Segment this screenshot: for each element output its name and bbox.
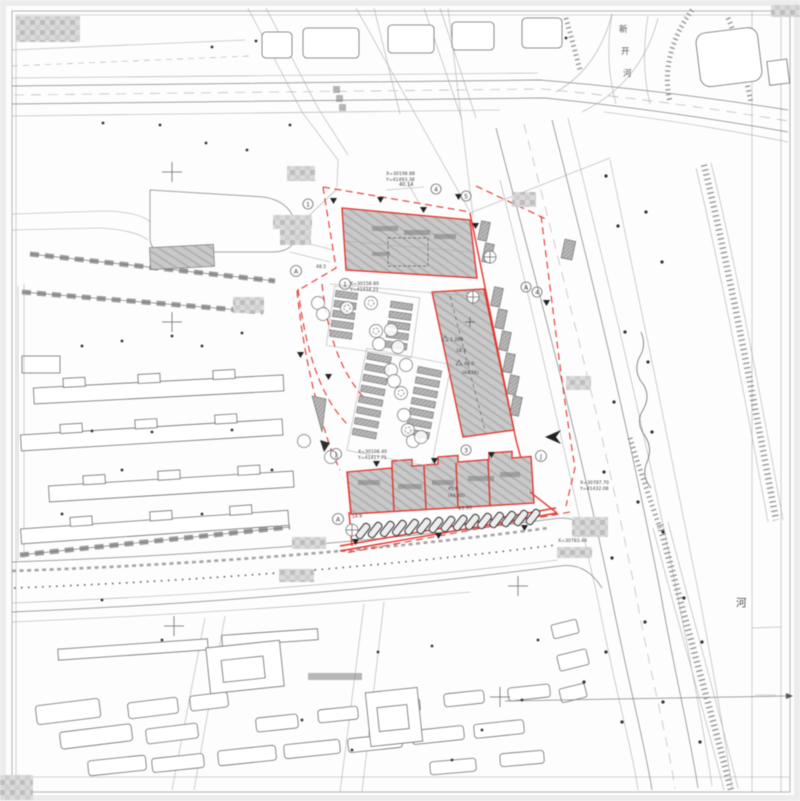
coordinate-note: X=30787.70	[580, 480, 609, 486]
elevation-note: 1.289	[450, 337, 463, 343]
building-a	[342, 208, 477, 278]
elevation-note: (44.80)	[448, 493, 465, 499]
river-name-char: 新	[619, 24, 628, 35]
illegible-label-smudge	[308, 673, 362, 680]
dimension-label: 14.9	[352, 513, 363, 520]
site-plan-drawing: A 1 4 5 A 4 1 J 3 J A X=30198.88 Y=41493…	[0, 0, 800, 801]
coordinate-note: X=30198.88	[386, 171, 415, 177]
bubble-label: 4	[535, 290, 539, 297]
coordinate-note: X=30108.40	[358, 449, 387, 455]
elevation-note: 46.0	[464, 361, 474, 367]
bubble-label: 1	[306, 202, 310, 209]
dimension-label: 43.90	[458, 505, 473, 512]
coordinate-note: X=30783.44	[558, 538, 587, 544]
bubble-label: J	[334, 452, 337, 459]
river-name-char: 开	[621, 47, 630, 57]
elevation-note: 45.6	[448, 486, 458, 492]
bubble-label: 4	[434, 187, 438, 194]
site-plan-canvas: A 1 4 5 A 4 1 J 3 J A X=30198.88 Y=41493…	[0, 0, 800, 801]
elevation-note: (44.56)	[462, 370, 479, 376]
coordinate-note: X=30158.80	[350, 281, 379, 287]
bubble-label: 1	[343, 282, 347, 289]
coordinate-note: Y=41432.08	[579, 486, 609, 492]
bubble-label: 5	[464, 194, 468, 201]
river-name-char: 河	[623, 68, 632, 79]
bubble-label: 3	[464, 448, 468, 455]
coordinate-note: Y=41434.21	[349, 287, 379, 293]
small-hatched-building	[149, 244, 214, 269]
elevation-note: 18.5	[456, 348, 466, 354]
page-background	[0, 0, 800, 801]
river-char: 河	[736, 597, 747, 609]
dimension-label: 48.5	[316, 264, 326, 270]
bubble-label: J	[539, 454, 542, 461]
dimension-label: 40.14	[399, 182, 413, 188]
small-building	[22, 356, 60, 373]
coordinate-note: Y=41417.75	[357, 455, 387, 461]
